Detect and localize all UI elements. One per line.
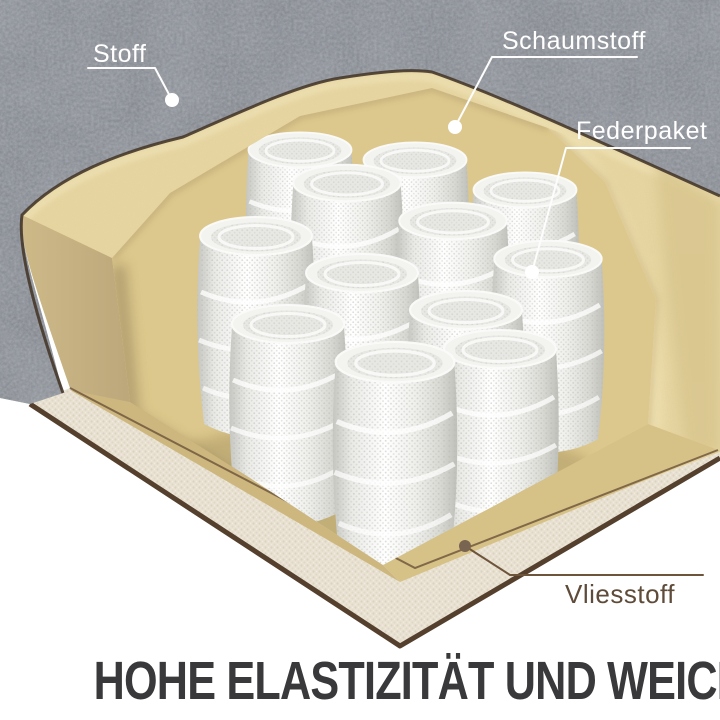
mattress-cutaway-illustration: [0, 0, 720, 720]
stoff-anchor-dot: [165, 93, 179, 107]
federpaket-anchor-dot: [525, 265, 539, 279]
headline: HOHE ELASTIZITÄT UND WEICHHEIT: [0, 650, 720, 712]
vliesstoff-anchor-dot: [459, 540, 471, 552]
headline-text: HOHE ELASTIZITÄT UND WEICHHEIT: [94, 650, 720, 712]
schaumstoff-anchor-dot: [448, 120, 462, 134]
figure-canvas: Stoff Schaumstoff Federpaket Vliesstoff …: [0, 0, 720, 720]
